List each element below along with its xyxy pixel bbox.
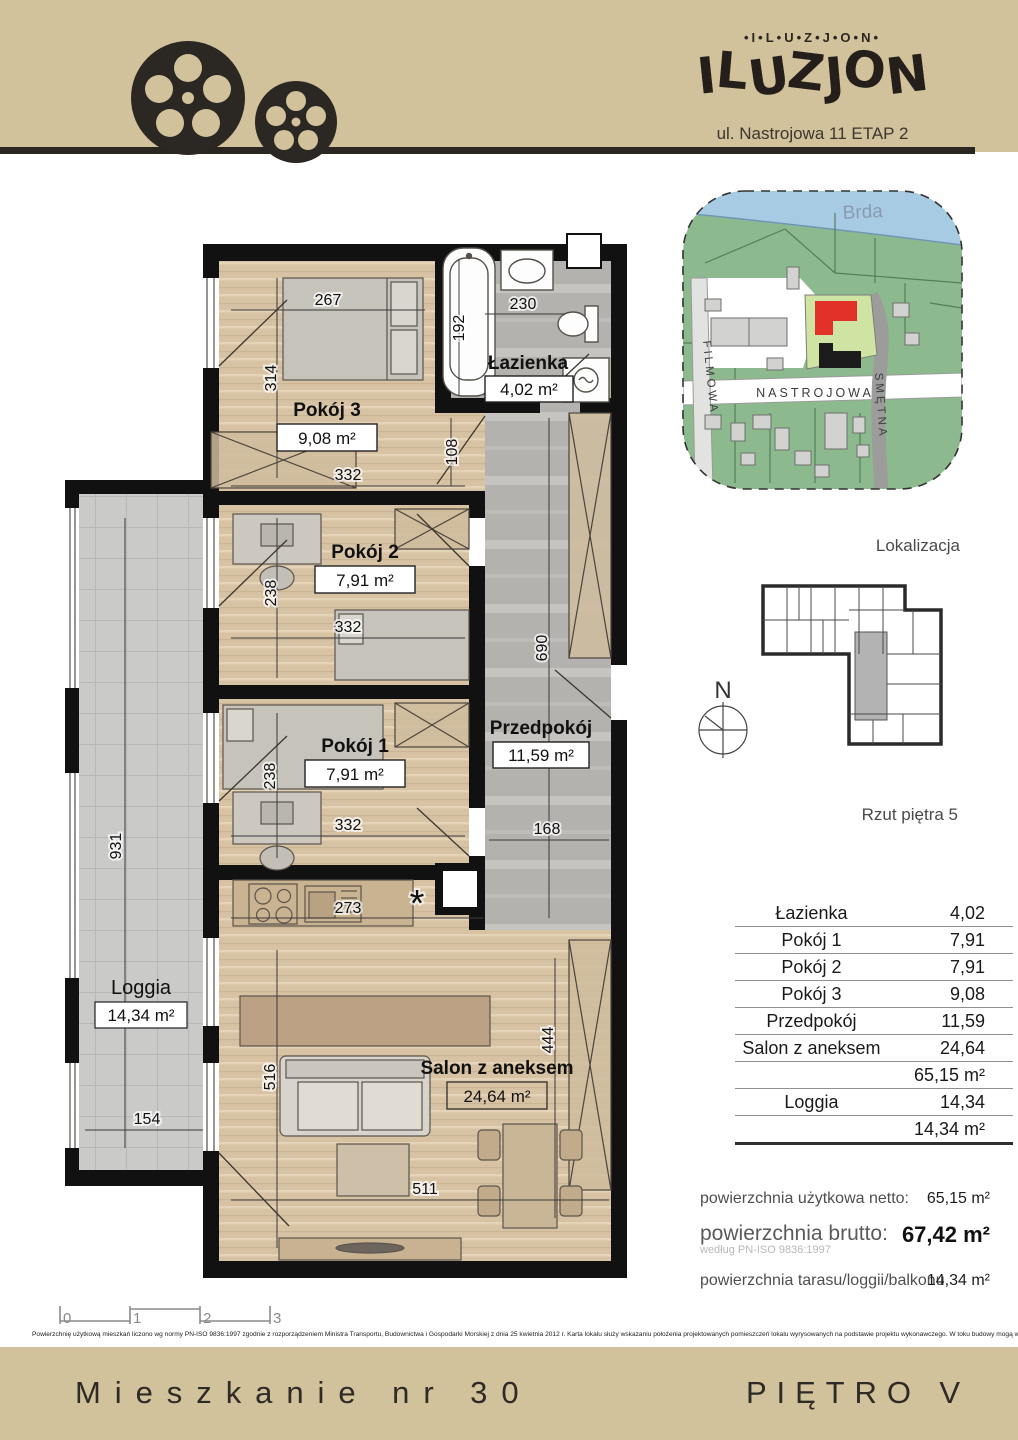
table-row: Pokój 39,08	[735, 981, 1013, 1008]
table-row: Łazienka4,02	[735, 900, 1013, 927]
dim-511: 511	[412, 1181, 438, 1198]
svg-text:7,91 m²: 7,91 m²	[336, 571, 394, 590]
label-przedpokoj: Przedpokój 11,59 m²	[490, 718, 592, 768]
summary-taras: powierzchnia tarasu/loggii/balkonu 14,34…	[700, 1272, 990, 1290]
legal-disclaimer: Powierzchnię użytkową mieszkań liczono w…	[32, 1331, 1018, 1338]
scale-3: 3	[273, 1310, 281, 1327]
row-label: Pokój 3	[735, 981, 888, 1007]
apartment-card-page: •I•L•U•Z•J•O•N• ILUZJON ul. Nastrojowa 1…	[0, 0, 1018, 1440]
row-value: 7,91	[888, 954, 1013, 980]
row-value: 9,08	[888, 981, 1013, 1007]
dim-332b: 332	[335, 619, 362, 636]
row-value: 7,91	[888, 927, 1013, 953]
dim-332a: 332	[335, 467, 362, 484]
film-reels-icon	[118, 30, 358, 165]
svg-text:Salon z aneksem: Salon z aneksem	[420, 1058, 573, 1079]
table-row: Przedpokój11,59	[735, 1008, 1013, 1035]
netto-value: 65,15 m²	[927, 1190, 990, 1208]
kitchen-counter	[233, 880, 413, 926]
compass: N	[693, 676, 757, 760]
window-pokoj1	[203, 713, 219, 803]
svg-text:Łazienka: Łazienka	[488, 353, 569, 374]
summary-brutto: powierzchnia brutto: 67,42 m²	[700, 1222, 990, 1246]
floor-number: PIĘTRO V	[746, 1375, 970, 1411]
dim-108: 108	[444, 439, 461, 466]
table-row: Pokój 27,91	[735, 954, 1013, 981]
bed-pokoj3	[283, 278, 423, 380]
coffee-table	[337, 1144, 409, 1196]
shaft-top	[567, 234, 601, 268]
svg-text:Pokój 3: Pokój 3	[293, 400, 361, 421]
svg-text:Loggia: Loggia	[111, 977, 172, 999]
label-lazienka: Łazienka 4,02 m²	[485, 353, 573, 402]
netto-label: powierzchnia użytkowa netto:	[700, 1190, 909, 1207]
compass-north-label: N	[714, 677, 731, 704]
scale-0: 0	[63, 1310, 71, 1327]
table-row: Pokój 17,91	[735, 927, 1013, 954]
row-label: Pokój 2	[735, 954, 888, 980]
window-pokoj3	[203, 278, 219, 368]
sofa	[280, 1056, 430, 1136]
svg-text:Przedpokój: Przedpokój	[490, 718, 592, 739]
dim-516: 516	[262, 1064, 279, 1091]
taras-value: 14,34 m²	[927, 1272, 990, 1290]
dim-267: 267	[315, 292, 342, 309]
project-address: ul. Nastrojowa 11 ETAP 2	[640, 124, 985, 144]
map-river-label: Brda	[842, 201, 884, 224]
dim-931: 931	[108, 833, 125, 860]
tv-bench	[279, 1238, 461, 1260]
location-map: Brda NASTROJOWA FILMOWA SMĘTNA	[675, 183, 970, 528]
row-label	[735, 1062, 888, 1088]
svg-text:11,59 m²: 11,59 m²	[508, 746, 574, 765]
table-row: Loggia14,34	[735, 1089, 1013, 1116]
window-pokoj2	[203, 518, 219, 608]
logo-letter: Z	[786, 45, 828, 99]
row-value: 14,34	[888, 1089, 1013, 1115]
loggia-floor	[79, 494, 203, 1170]
shaft-kitchen	[442, 870, 478, 908]
dim-273: 273	[335, 900, 362, 917]
row-label: Przedpokój	[735, 1008, 888, 1034]
apartment-number: Mieszkanie nr 30	[75, 1375, 533, 1411]
table-row: Salon z aneksem24,64	[735, 1035, 1013, 1062]
window-salon-2	[203, 1063, 219, 1151]
window-salon-1	[203, 938, 219, 1026]
svg-text:Pokój 2: Pokój 2	[331, 542, 399, 563]
floor-overview-plan	[753, 566, 971, 761]
dim-444: 444	[540, 1027, 557, 1054]
brutto-value: 67,42 m²	[902, 1222, 990, 1248]
svg-text:24,64 m²: 24,64 m²	[463, 1087, 530, 1106]
dim-690: 690	[534, 635, 551, 662]
svg-text:7,91 m²: 7,91 m²	[326, 765, 384, 784]
taras-label: powierzchnia tarasu/loggii/balkonu	[700, 1272, 945, 1289]
iluzjon-logo: ILUZJON	[640, 48, 985, 98]
summary-netto: powierzchnia użytkowa netto: 65,15 m²	[700, 1190, 990, 1208]
areas-table: Łazienka4,02 Pokój 17,91 Pokój 27,91 Pok…	[735, 900, 1013, 1145]
row-label: Pokój 1	[735, 927, 888, 953]
dim-238a: 238	[263, 580, 280, 607]
table-row-subtotal: 14,34 m²	[735, 1116, 1013, 1145]
floor-overview-caption: Rzut piętra 5	[758, 805, 958, 825]
brutto-label: powierzchnia brutto:	[700, 1222, 888, 1245]
area-summary: powierzchnia użytkowa netto: 65,15 m² po…	[700, 1190, 990, 1290]
svg-text:4,02 m²: 4,02 m²	[500, 380, 558, 399]
row-value: 24,64	[888, 1035, 1013, 1061]
scale-1: 1	[133, 1310, 141, 1327]
row-label: Salon z aneksem	[735, 1035, 888, 1061]
dim-168: 168	[534, 821, 561, 838]
dim-314: 314	[263, 365, 280, 392]
gas-point-symbol: *	[410, 883, 425, 925]
dim-238b: 238	[262, 763, 279, 790]
svg-text:14,34 m²: 14,34 m²	[107, 1006, 174, 1025]
row-label: Łazienka	[735, 900, 888, 926]
svg-text:9,08 m²: 9,08 m²	[298, 429, 356, 448]
dim-154: 154	[134, 1111, 161, 1128]
dim-332c: 332	[335, 817, 362, 834]
scale-2: 2	[203, 1310, 211, 1327]
logo-letter: N	[883, 48, 931, 103]
row-value: 4,02	[888, 900, 1013, 926]
svg-text:Pokój 1: Pokój 1	[321, 736, 389, 757]
map-street-main-label: NASTROJOWA	[756, 386, 874, 400]
table-row-subtotal: 65,15 m²	[735, 1062, 1013, 1089]
dim-230: 230	[510, 296, 537, 313]
unit-highlight	[855, 632, 887, 720]
dim-192: 192	[451, 315, 468, 342]
footer-band: Mieszkanie nr 30 PIĘTRO V	[0, 1347, 1018, 1440]
logo-letter: O	[841, 43, 889, 97]
row-value: 65,15 m²	[888, 1062, 1013, 1088]
row-value: 11,59	[888, 1008, 1013, 1034]
wardrobe-pokoj1	[395, 703, 469, 747]
scale-bar: 0 1 2 3	[52, 1300, 287, 1330]
floor-plan: 267 314 332 192 230 108 238 332 690 168 …	[65, 218, 640, 1303]
row-label: Loggia	[735, 1089, 888, 1115]
row-label	[735, 1116, 888, 1142]
row-value: 14,34 m²	[888, 1116, 1013, 1142]
wardrobe-przedpokoj	[569, 413, 611, 658]
map-caption: Lokalizacja	[760, 536, 960, 556]
